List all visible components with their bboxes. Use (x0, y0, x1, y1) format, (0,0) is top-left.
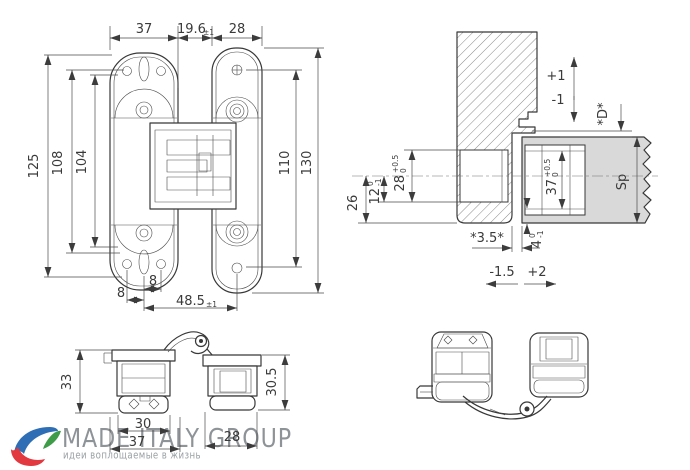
dim-37-section: 37 (545, 179, 560, 196)
dim-30-5: 30.5 (265, 368, 280, 397)
side-left-body (104, 350, 175, 413)
vertical-adjust-plus: +1 (546, 69, 565, 84)
dim-110: 110 (278, 151, 293, 176)
door-thickness-sp: Sp (615, 174, 630, 191)
dim-8-lower: 8 (117, 286, 125, 301)
dim-12: 12 (368, 188, 383, 205)
persp-left-body (432, 332, 492, 402)
front-knuckle-mechanism (150, 123, 236, 209)
dim-d: *D* (596, 102, 611, 126)
dim-30: 30 (135, 417, 152, 432)
dim-130: 130 (300, 151, 315, 176)
dim-19-6-tol: ±1 (203, 28, 214, 37)
dim-12-tol-dn: -1 (374, 178, 383, 186)
dim-37-tol-dn: 0 (551, 172, 560, 177)
dim-26: 26 (346, 195, 361, 212)
lateral-adjust-minus: -1.5 (489, 265, 514, 280)
dim-4-tol-dn: -1 (536, 230, 545, 238)
section-view: +1 -1 *D* 26 12 0 -1 28 +0.5 0 (346, 32, 658, 284)
perspective-view (417, 332, 588, 419)
dim-104: 104 (75, 150, 90, 175)
dim-28-section: 28 (393, 175, 408, 192)
dim-28-top: 28 (229, 22, 246, 37)
front-view: 37 19.6 ±1 28 125 108 104 110 130 (27, 22, 324, 311)
technical-drawing-page: MADE ITALY GROUP идеи воплощаемые в жизн… (0, 0, 690, 470)
logo-bird-icon (11, 427, 61, 466)
made-italy-group-logo: MADE ITALY GROUP идеи воплощаемые в жизн… (11, 424, 292, 466)
dim-8-upper: 8 (149, 274, 157, 289)
dim-125: 125 (27, 154, 42, 179)
dim-48-5: 48.5 (176, 294, 205, 309)
dim-28-tol-dn: 0 (399, 168, 408, 173)
dim-37-side: 37 (129, 435, 146, 450)
hinge-drawing-svg: MADE ITALY GROUP идеи воплощаемые в жизн… (0, 0, 690, 470)
lateral-adjust-plus: +2 (527, 265, 546, 280)
dim-108: 108 (51, 151, 66, 176)
persp-right-body (530, 333, 588, 397)
dim-33: 33 (60, 374, 75, 391)
dim-gap-3-5: *3.5* (470, 231, 504, 246)
dim-19-6: 19.6 (177, 22, 206, 37)
dim-28-side: 28 (224, 430, 241, 445)
dim-48-5-tol: ±1 (206, 300, 217, 309)
persp-bracket (417, 386, 433, 398)
side-right-body (203, 355, 261, 410)
vertical-adjust-minus: -1 (552, 93, 565, 108)
dim-4: 4 (530, 240, 545, 248)
dim-37-top: 37 (136, 22, 153, 37)
